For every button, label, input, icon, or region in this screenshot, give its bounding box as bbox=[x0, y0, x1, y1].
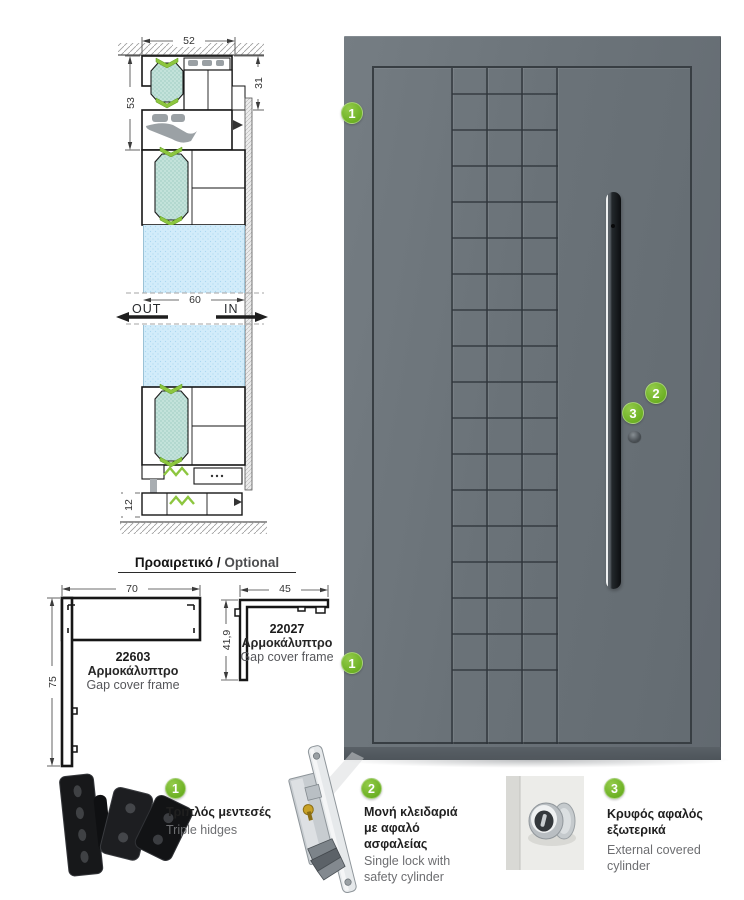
feature-number: 1 bbox=[172, 782, 179, 796]
optional-title-english: Optional bbox=[224, 555, 279, 570]
marker-label: 3 bbox=[629, 406, 636, 421]
feature-3-badge: 3 bbox=[604, 778, 625, 799]
door-square-grid bbox=[452, 59, 558, 675]
dim-sash-height: 31 bbox=[253, 67, 265, 99]
thermal-break-sash-bottom bbox=[155, 384, 188, 467]
door-shadow bbox=[336, 752, 732, 768]
feature-1-badge: 1 bbox=[165, 778, 186, 799]
profile-code: 22603 bbox=[83, 650, 183, 664]
cross-section-drawing bbox=[112, 28, 347, 544]
cylinder-photo bbox=[506, 776, 584, 870]
out-label: OUT bbox=[132, 302, 161, 316]
feature-2-title-english: Single lock with safety cylinder bbox=[364, 853, 474, 885]
door-pull-handle bbox=[606, 192, 621, 589]
feature-1-title-greek: Τριπλός μεντεσές bbox=[166, 804, 291, 820]
dim-22603-height: 75 bbox=[47, 666, 59, 698]
cross-section-panel: 52 53 31 60 OUT IN 12 bbox=[112, 28, 347, 544]
feature-2-badge: 2 bbox=[361, 778, 382, 799]
profile-22603-label: 22603 Αρμοκάλυπτρο Gap cover frame bbox=[83, 650, 183, 692]
in-label: IN bbox=[224, 302, 239, 316]
profile-name-greek: Αρμοκάλυπτρο bbox=[237, 636, 337, 650]
profile-code: 22027 bbox=[237, 622, 337, 636]
feature-number: 3 bbox=[611, 782, 618, 796]
feature-2-title-greek: Μονή κλειδαριά με αφαλό ασφαλείας bbox=[364, 804, 459, 852]
lock-latch bbox=[305, 784, 322, 800]
profile-name-english: Gap cover frame bbox=[83, 678, 183, 692]
handle-screw bbox=[611, 224, 615, 228]
feature-1-title-english: Triple hidges bbox=[166, 822, 291, 838]
dim-22603-width: 70 bbox=[116, 583, 148, 595]
marker-1-top: 1 bbox=[341, 102, 363, 124]
feature-number: 2 bbox=[368, 782, 375, 796]
marker-2: 2 bbox=[645, 382, 667, 404]
optional-title-greek: Προαιρετικό / bbox=[135, 555, 221, 570]
marker-label: 1 bbox=[348, 106, 355, 121]
dim-22027-height: 41,9 bbox=[221, 624, 233, 656]
marker-3: 3 bbox=[622, 402, 644, 424]
profile-22027-label: 22027 Αρμοκάλυπτρο Gap cover frame bbox=[237, 622, 337, 664]
leaf-face-band bbox=[245, 98, 252, 490]
optional-section-title: Προαιρετικό / Optional bbox=[118, 555, 296, 573]
dim-22027-width: 45 bbox=[269, 583, 301, 595]
dim-threshold-height: 12 bbox=[123, 489, 135, 521]
feature-3-title-greek: Κρυφός αφαλός εξωτερικά bbox=[607, 806, 715, 838]
thermal-break-sash-top bbox=[155, 147, 188, 226]
door-cylinder-knob bbox=[628, 431, 641, 442]
glass-pane-1 bbox=[143, 225, 245, 293]
glass-pane-2 bbox=[143, 325, 245, 387]
catalog-page: 52 53 31 60 OUT IN 12 1 1 2 3 Προαιρετικ… bbox=[0, 0, 744, 900]
dim-glass-width: 60 bbox=[179, 294, 211, 306]
dim-frame-height: 53 bbox=[125, 87, 137, 119]
marker-label: 2 bbox=[652, 386, 659, 401]
ground-hatch bbox=[120, 522, 267, 534]
profile-name-greek: Αρμοκάλυπτρο bbox=[83, 664, 183, 678]
threshold-profile bbox=[142, 493, 242, 515]
feature-3-title-english: External covered cylinder bbox=[607, 842, 727, 874]
dim-frame-width: 52 bbox=[173, 35, 205, 47]
clip-top bbox=[233, 120, 243, 130]
profile-name-english: Gap cover frame bbox=[237, 650, 337, 664]
profile-22027-drawing: 45 41,9 22027 Αρμοκάλυπτρο Gap cover fra… bbox=[210, 578, 350, 748]
thermal-break-head bbox=[151, 58, 183, 108]
profile-22027-clips bbox=[235, 607, 325, 616]
profile-22603-drawing: 70 75 22603 Αρμοκάλυπτρο Gap cover frame bbox=[40, 578, 220, 773]
